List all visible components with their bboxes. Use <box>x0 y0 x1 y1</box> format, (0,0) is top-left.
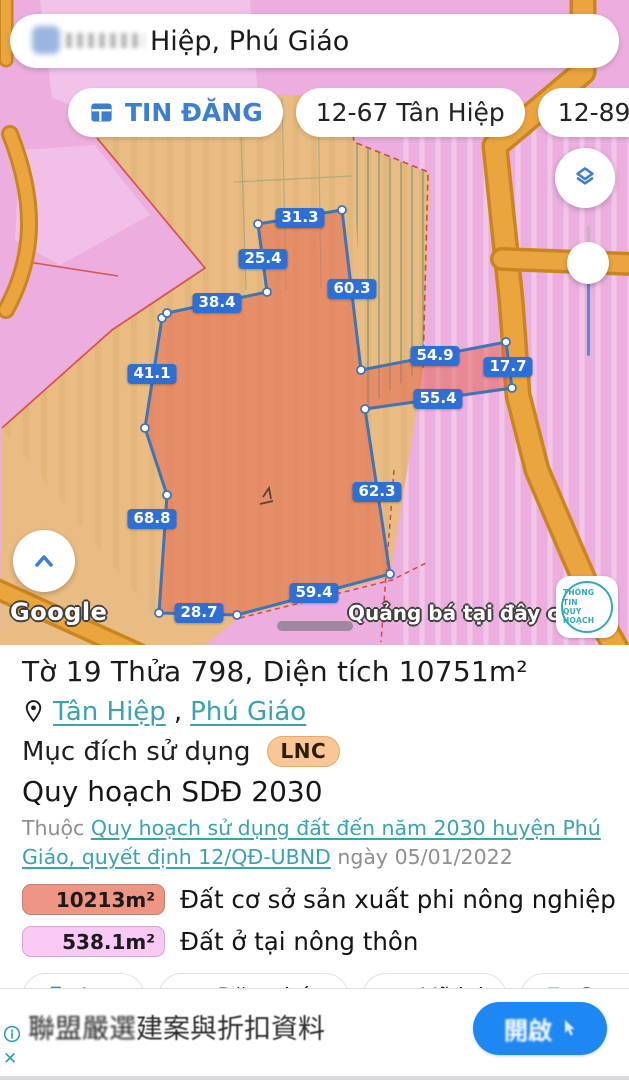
parcel-chip-12-67[interactable]: 12-67 Tân Hiệp <box>296 88 525 137</box>
cursor-icon <box>560 1019 576 1039</box>
plan-paragraph: Thuộc Quy hoạch sử dụng đất đến năm 2030… <box>22 814 617 872</box>
ad-close-icon[interactable]: ✕ <box>3 1051 17 1068</box>
ad-info-icon[interactable] <box>3 1025 21 1043</box>
ad-headline-obscured: 聯盟嚴選 <box>28 1014 136 1045</box>
collapse-panel-button[interactable] <box>13 530 75 592</box>
chip-row: TIN ĐĂNG 12-67 Tân Hiệp 12-89 Tân Hiệp <box>68 88 629 137</box>
ad-headline-rest: 建案與折扣資料 <box>136 1014 325 1045</box>
chip-label: 12-67 Tân Hiệp <box>316 98 505 127</box>
planning-info-logo: THÔNG TIN QUY HOẠCH <box>556 576 618 638</box>
bottom-sheet-handle[interactable] <box>277 621 353 631</box>
chevron-up-icon <box>28 545 60 577</box>
plan-suffix: ngày 05/01/2022 <box>331 845 513 869</box>
purpose-row: Mục đích sử dụng LNC <box>22 736 629 767</box>
plan-title: Quy hoạch SDĐ 2030 <box>22 775 629 808</box>
map-canvas[interactable]: 31.325.460.338.441.154.917.755.462.368.8… <box>0 0 629 645</box>
legend-row: 538.1m² Đất ở tại nông thôn <box>22 926 629 957</box>
map-slider-handle[interactable] <box>567 242 609 284</box>
legend-swatch-industrial: 10213m² <box>22 884 165 915</box>
land-planning-app: 31.325.460.338.441.154.917.755.462.368.8… <box>0 0 629 1080</box>
search-bar[interactable]: Hiệp, Phú Giáo <box>10 14 619 68</box>
listings-grid-icon <box>88 99 115 126</box>
location-separator: , <box>174 697 182 727</box>
zoning-legend: 10213m² Đất cơ sở sản xuất phi nông nghi… <box>22 884 629 957</box>
ad-cta-label: 開啟 <box>504 1011 552 1046</box>
chip-label: 12-89 Tân Hiệp <box>558 98 629 127</box>
commune-link[interactable]: Tân Hiệp <box>53 697 166 727</box>
ad-cta-button[interactable]: 開啟 <box>473 1002 607 1055</box>
legend-label: Đất cơ sở sản xuất phi nông nghiệp <box>180 885 616 914</box>
layers-icon <box>569 162 601 194</box>
tin-dang-button[interactable]: TIN ĐĂNG <box>68 88 283 137</box>
legend-swatch-residential: 538.1m² <box>22 926 165 957</box>
ad-headline: 聯盟嚴選建案與折扣資料 <box>28 1007 325 1046</box>
chip-label: TIN ĐĂNG <box>125 98 263 127</box>
location-pin-icon <box>22 699 45 726</box>
google-attribution: Google <box>10 598 107 626</box>
legend-row: 10213m² Đất cơ sở sản xuất phi nông nghi… <box>22 884 629 915</box>
land-use-code-badge[interactable]: LNC <box>267 736 341 767</box>
legend-label: Đất ở tại nông thôn <box>180 927 418 956</box>
parcel-chip-12-89[interactable]: 12-89 Tân Hiệp <box>538 88 629 137</box>
plan-prefix: Thuộc <box>22 816 91 840</box>
stamp-line1: THÔNG TIN <box>563 588 611 607</box>
map-layers-button[interactable] <box>555 148 615 208</box>
search-input[interactable]: Hiệp, Phú Giáo <box>150 26 349 57</box>
obscured-watermark <box>30 24 150 58</box>
district-link[interactable]: Phú Giáo <box>190 697 306 727</box>
parcel-title: Tờ 19 Thửa 798, Diện tích 10751m² <box>22 655 629 688</box>
purpose-label: Mục đích sử dụng <box>22 737 251 767</box>
location-row: Tân Hiệp , Phú Giáo <box>22 697 629 727</box>
ad-banner: ✕ 聯盟嚴選建案與折扣資料 開啟 <box>0 989 629 1076</box>
bottom-safe-area <box>0 1076 629 1080</box>
stamp-line2: QUY HOẠCH <box>563 607 611 626</box>
plan-link[interactable]: Quy hoạch sử dụng đất đến năm 2030 huyện… <box>22 816 601 869</box>
